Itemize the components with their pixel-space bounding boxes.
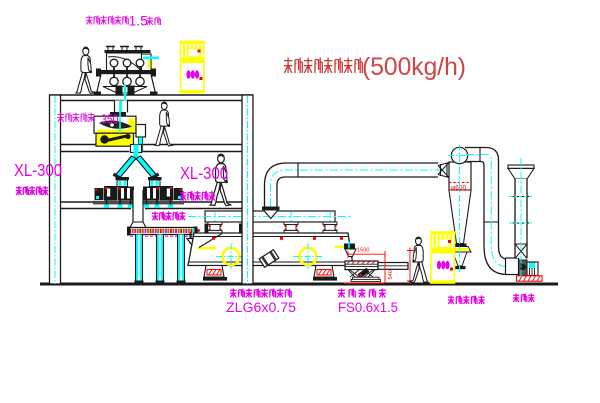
svg-text:ZLG6x0.75: ZLG6x0.75 <box>226 300 296 315</box>
svg-text:FS0.6x1.5: FS0.6x1.5 <box>338 300 398 315</box>
svg-text:1.5: 1.5 <box>129 13 149 29</box>
svg-text:1500: 1500 <box>357 248 369 254</box>
svg-text:(500kg/h): (500kg/h) <box>362 53 466 81</box>
svg-text:XL-300: XL-300 <box>14 160 62 180</box>
svg-text:540: 540 <box>388 270 394 279</box>
svg-text:350: 350 <box>101 112 119 127</box>
svg-text:φ600: φ600 <box>451 185 466 192</box>
svg-text:XL-300: XL-300 <box>180 163 228 183</box>
